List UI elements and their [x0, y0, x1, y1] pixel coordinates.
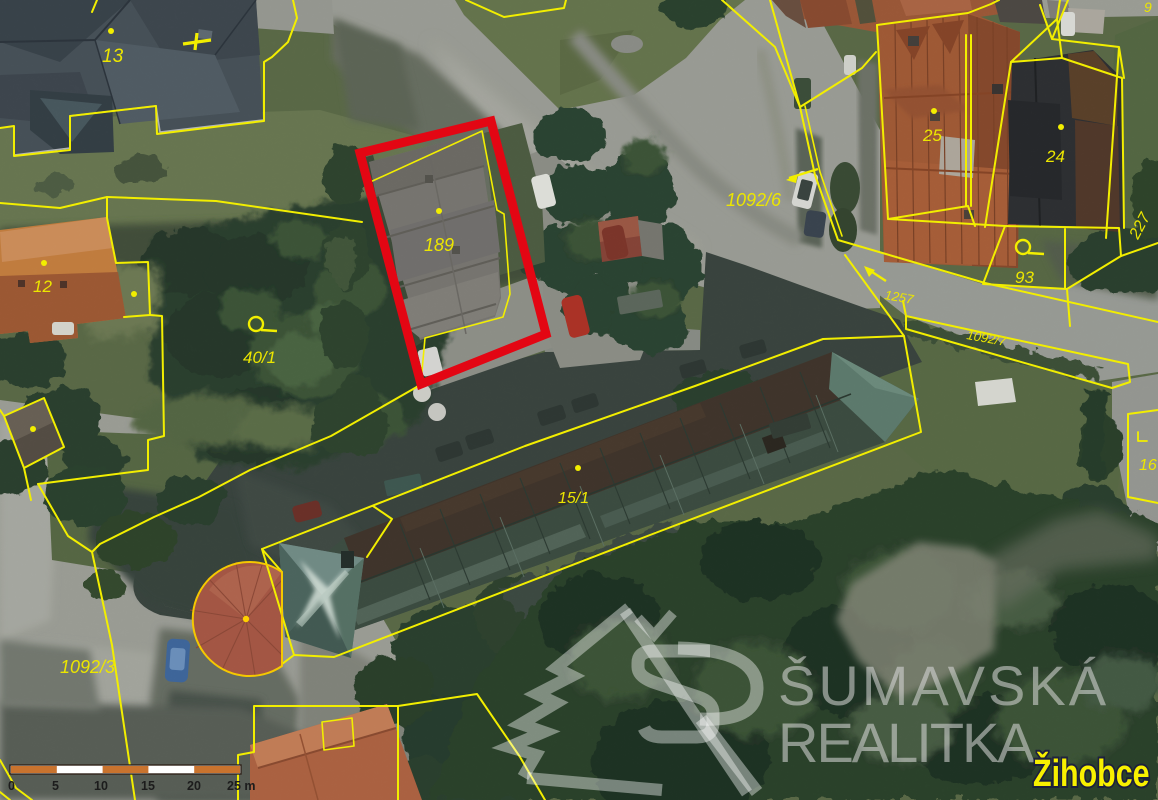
svg-text:10: 10 — [94, 779, 108, 793]
svg-text:25 m: 25 m — [227, 779, 256, 793]
svg-text:20: 20 — [187, 779, 201, 793]
svg-text:15: 15 — [141, 779, 155, 793]
svg-text:5: 5 — [52, 779, 59, 793]
svg-text:0: 0 — [8, 779, 15, 793]
